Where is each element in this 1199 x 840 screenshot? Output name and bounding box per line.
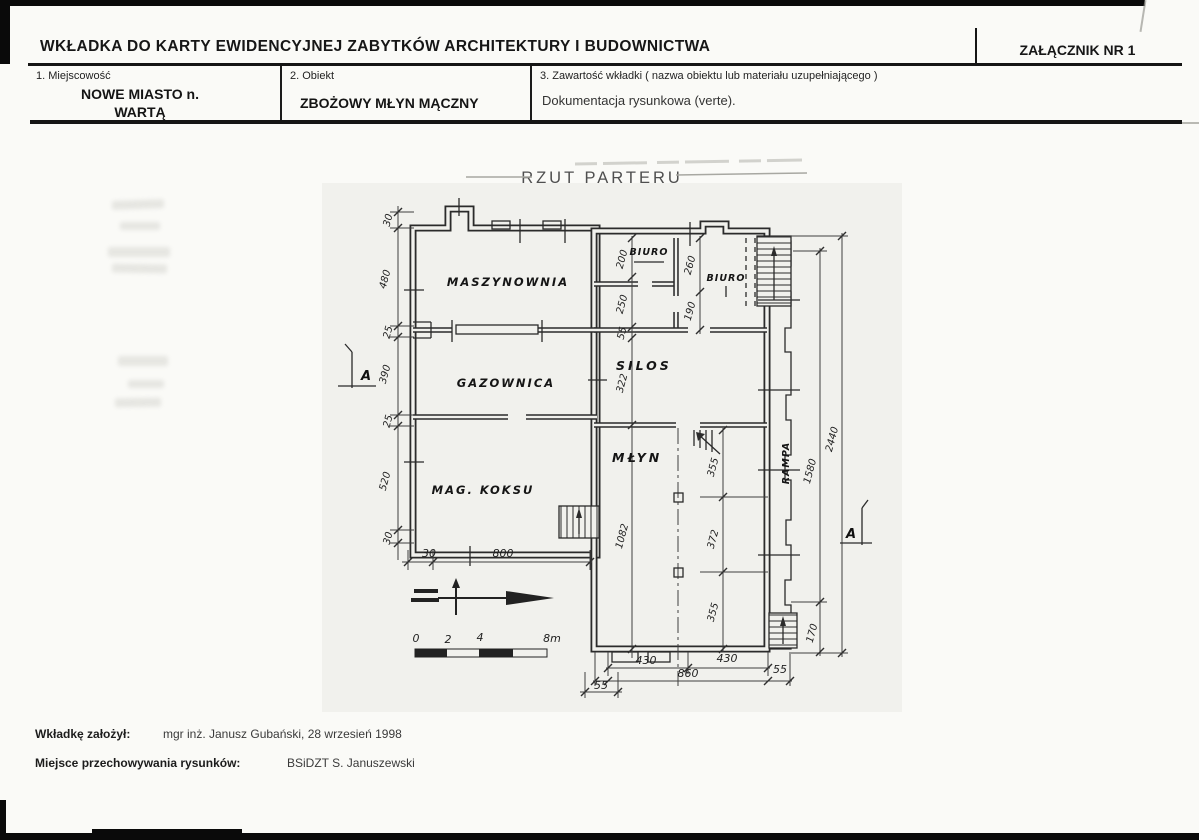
scale-tick-label: 0 xyxy=(413,632,420,645)
room-label-maszynownia: MASZYNOWNIA xyxy=(447,275,569,289)
staircase-mid xyxy=(559,506,599,538)
floor-plan: RZUT PARTERU xyxy=(330,150,885,715)
bleed-through-mark xyxy=(120,222,160,230)
room-label-biuro-1: BIURO xyxy=(630,247,669,258)
scan-edge-top xyxy=(0,0,1145,6)
crossed-out-text xyxy=(575,160,802,164)
field-3-value: Dokumentacja rysunkowa (verte). xyxy=(542,93,736,108)
dim-label: 1082 xyxy=(614,523,631,550)
dim-label: 170 xyxy=(805,623,821,644)
title-strike-right xyxy=(676,173,807,175)
dim-label: 390 xyxy=(378,364,394,385)
footer-storage-value: BSiDZT S. Januszewski xyxy=(287,756,415,770)
staircase-top-right xyxy=(757,236,791,306)
divider xyxy=(975,28,977,64)
dim-label: 190 xyxy=(683,301,699,322)
section-label: A xyxy=(845,527,856,542)
field-1-label: 1. Miejscowość xyxy=(36,70,111,82)
door-threshold xyxy=(612,652,638,662)
room-label-rampa: RAMPA xyxy=(781,442,792,485)
divider xyxy=(280,66,282,121)
footer-created-label: Wkładkę założył: xyxy=(35,727,130,741)
dim-label: 25 xyxy=(382,325,396,340)
dim-label: 800 xyxy=(493,547,514,560)
internal-walls xyxy=(413,238,767,425)
east-building-outline xyxy=(594,224,767,649)
bleed-through-mark xyxy=(108,247,170,257)
room-label-gazownica: GAZOWNICA xyxy=(457,376,555,390)
scale-tick-label: 4 xyxy=(477,631,484,644)
dim-label: 260 xyxy=(683,255,699,276)
bleed-through-mark xyxy=(112,264,167,274)
dim-label: 250 xyxy=(615,294,631,315)
scanned-document-page: { "header": { "title": "WKŁADKA DO KARTY… xyxy=(0,0,1199,840)
dim-label: 25 xyxy=(382,414,396,429)
bleed-through-mark xyxy=(115,398,161,408)
page-title: WKŁADKA DO KARTY EWIDENCYJNEJ ZABYTKÓW A… xyxy=(40,38,710,56)
drawing-title: RZUT PARTERU xyxy=(521,169,683,187)
scale-tick-label: 8m xyxy=(543,632,561,645)
dim-label: 355 xyxy=(706,602,722,623)
room-label-mlyn: MŁYN xyxy=(612,450,662,465)
dim-label: 30 xyxy=(422,547,436,560)
dim-label: 200 xyxy=(615,249,631,270)
divider xyxy=(30,120,1182,124)
field-1-value-line2: WARTĄ xyxy=(0,104,280,120)
staircase-mlyn xyxy=(694,430,720,454)
bleed-through-mark xyxy=(128,380,164,388)
section-label: A xyxy=(360,369,371,384)
dim-label: 355 xyxy=(706,457,722,478)
scale-bar: 0 2 4 8m xyxy=(413,631,561,657)
divider xyxy=(1182,122,1199,124)
dim-label: 520 xyxy=(378,471,394,492)
dim-label: 860 xyxy=(678,667,699,680)
attachment-label: ZAŁĄCZNIK NR 1 xyxy=(975,42,1180,58)
scan-edge-top-left xyxy=(0,0,10,64)
section-marker-right: A xyxy=(840,500,872,545)
field-3-label: 3. Zawartość wkładki ( nazwa obiektu lub… xyxy=(540,70,878,82)
machine-foundation xyxy=(456,325,538,334)
bleed-through-mark xyxy=(112,199,164,210)
dim-label: 480 xyxy=(378,269,394,290)
divider xyxy=(28,63,1182,66)
dim-label: 30 xyxy=(382,213,396,228)
footer-created-value: mgr inż. Janusz Gubański, 28 wrzesień 19… xyxy=(163,727,402,741)
dim-label: 430 xyxy=(717,652,738,665)
scan-edge-bottom-left xyxy=(0,800,6,840)
dim-label: 55 xyxy=(773,663,787,676)
dim-label: 2440 xyxy=(824,426,841,453)
north-arrow xyxy=(411,578,554,615)
room-label-mag-koksu: MAG. KOKSU xyxy=(432,483,535,497)
dim-label: 372 xyxy=(706,529,722,550)
room-label-biuro-2: BIURO xyxy=(707,273,746,284)
field-2-label: 2. Obiekt xyxy=(290,70,334,82)
dim-label: 55 xyxy=(594,679,608,692)
dim-label: 322 xyxy=(615,373,631,394)
dim-label: 30 xyxy=(382,531,396,546)
divider xyxy=(530,66,532,121)
dim-label: 1580 xyxy=(802,458,819,485)
field-2-value: ZBOŻOWY MŁYN MĄCZNY xyxy=(300,95,479,111)
staircase-bottom-right xyxy=(769,613,797,648)
section-marker-left: A xyxy=(338,344,376,388)
bleed-through-mark xyxy=(118,356,168,366)
field-1-value-line1: NOWE MIASTO n. xyxy=(0,86,280,102)
footer-storage-label: Miejsce przechowywania rysunków: xyxy=(35,756,240,770)
room-label-silos: SILOS xyxy=(616,358,672,373)
scan-edge-bottom-bump xyxy=(92,829,242,840)
dim-label: 430 xyxy=(636,654,657,667)
scale-tick-label: 2 xyxy=(445,633,452,646)
